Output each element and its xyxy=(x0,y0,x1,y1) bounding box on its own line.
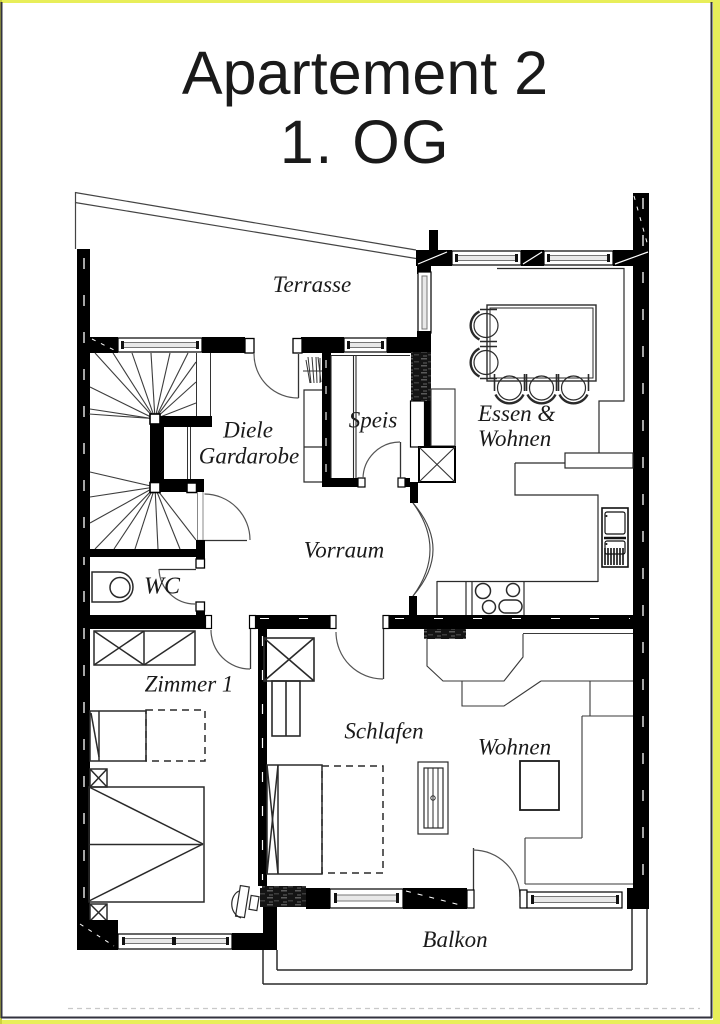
svg-text:Vorraum: Vorraum xyxy=(304,538,385,563)
svg-text:WC: WC xyxy=(144,574,181,600)
svg-text:Zimmer 1: Zimmer 1 xyxy=(145,672,234,697)
svg-text:1. OG: 1. OG xyxy=(280,108,450,176)
svg-text:Wohnen: Wohnen xyxy=(478,735,551,760)
svg-text:Wohnen: Wohnen xyxy=(478,426,551,451)
svg-text:Apartement 2: Apartement 2 xyxy=(182,39,548,107)
svg-text:Diele: Diele xyxy=(222,418,273,443)
svg-text:Schlafen: Schlafen xyxy=(344,719,423,744)
svg-text:Essen &: Essen & xyxy=(477,401,555,426)
svg-text:Terrasse: Terrasse xyxy=(273,272,351,297)
svg-text:Balkon: Balkon xyxy=(422,927,487,952)
svg-text:Gardarobe: Gardarobe xyxy=(199,444,300,469)
